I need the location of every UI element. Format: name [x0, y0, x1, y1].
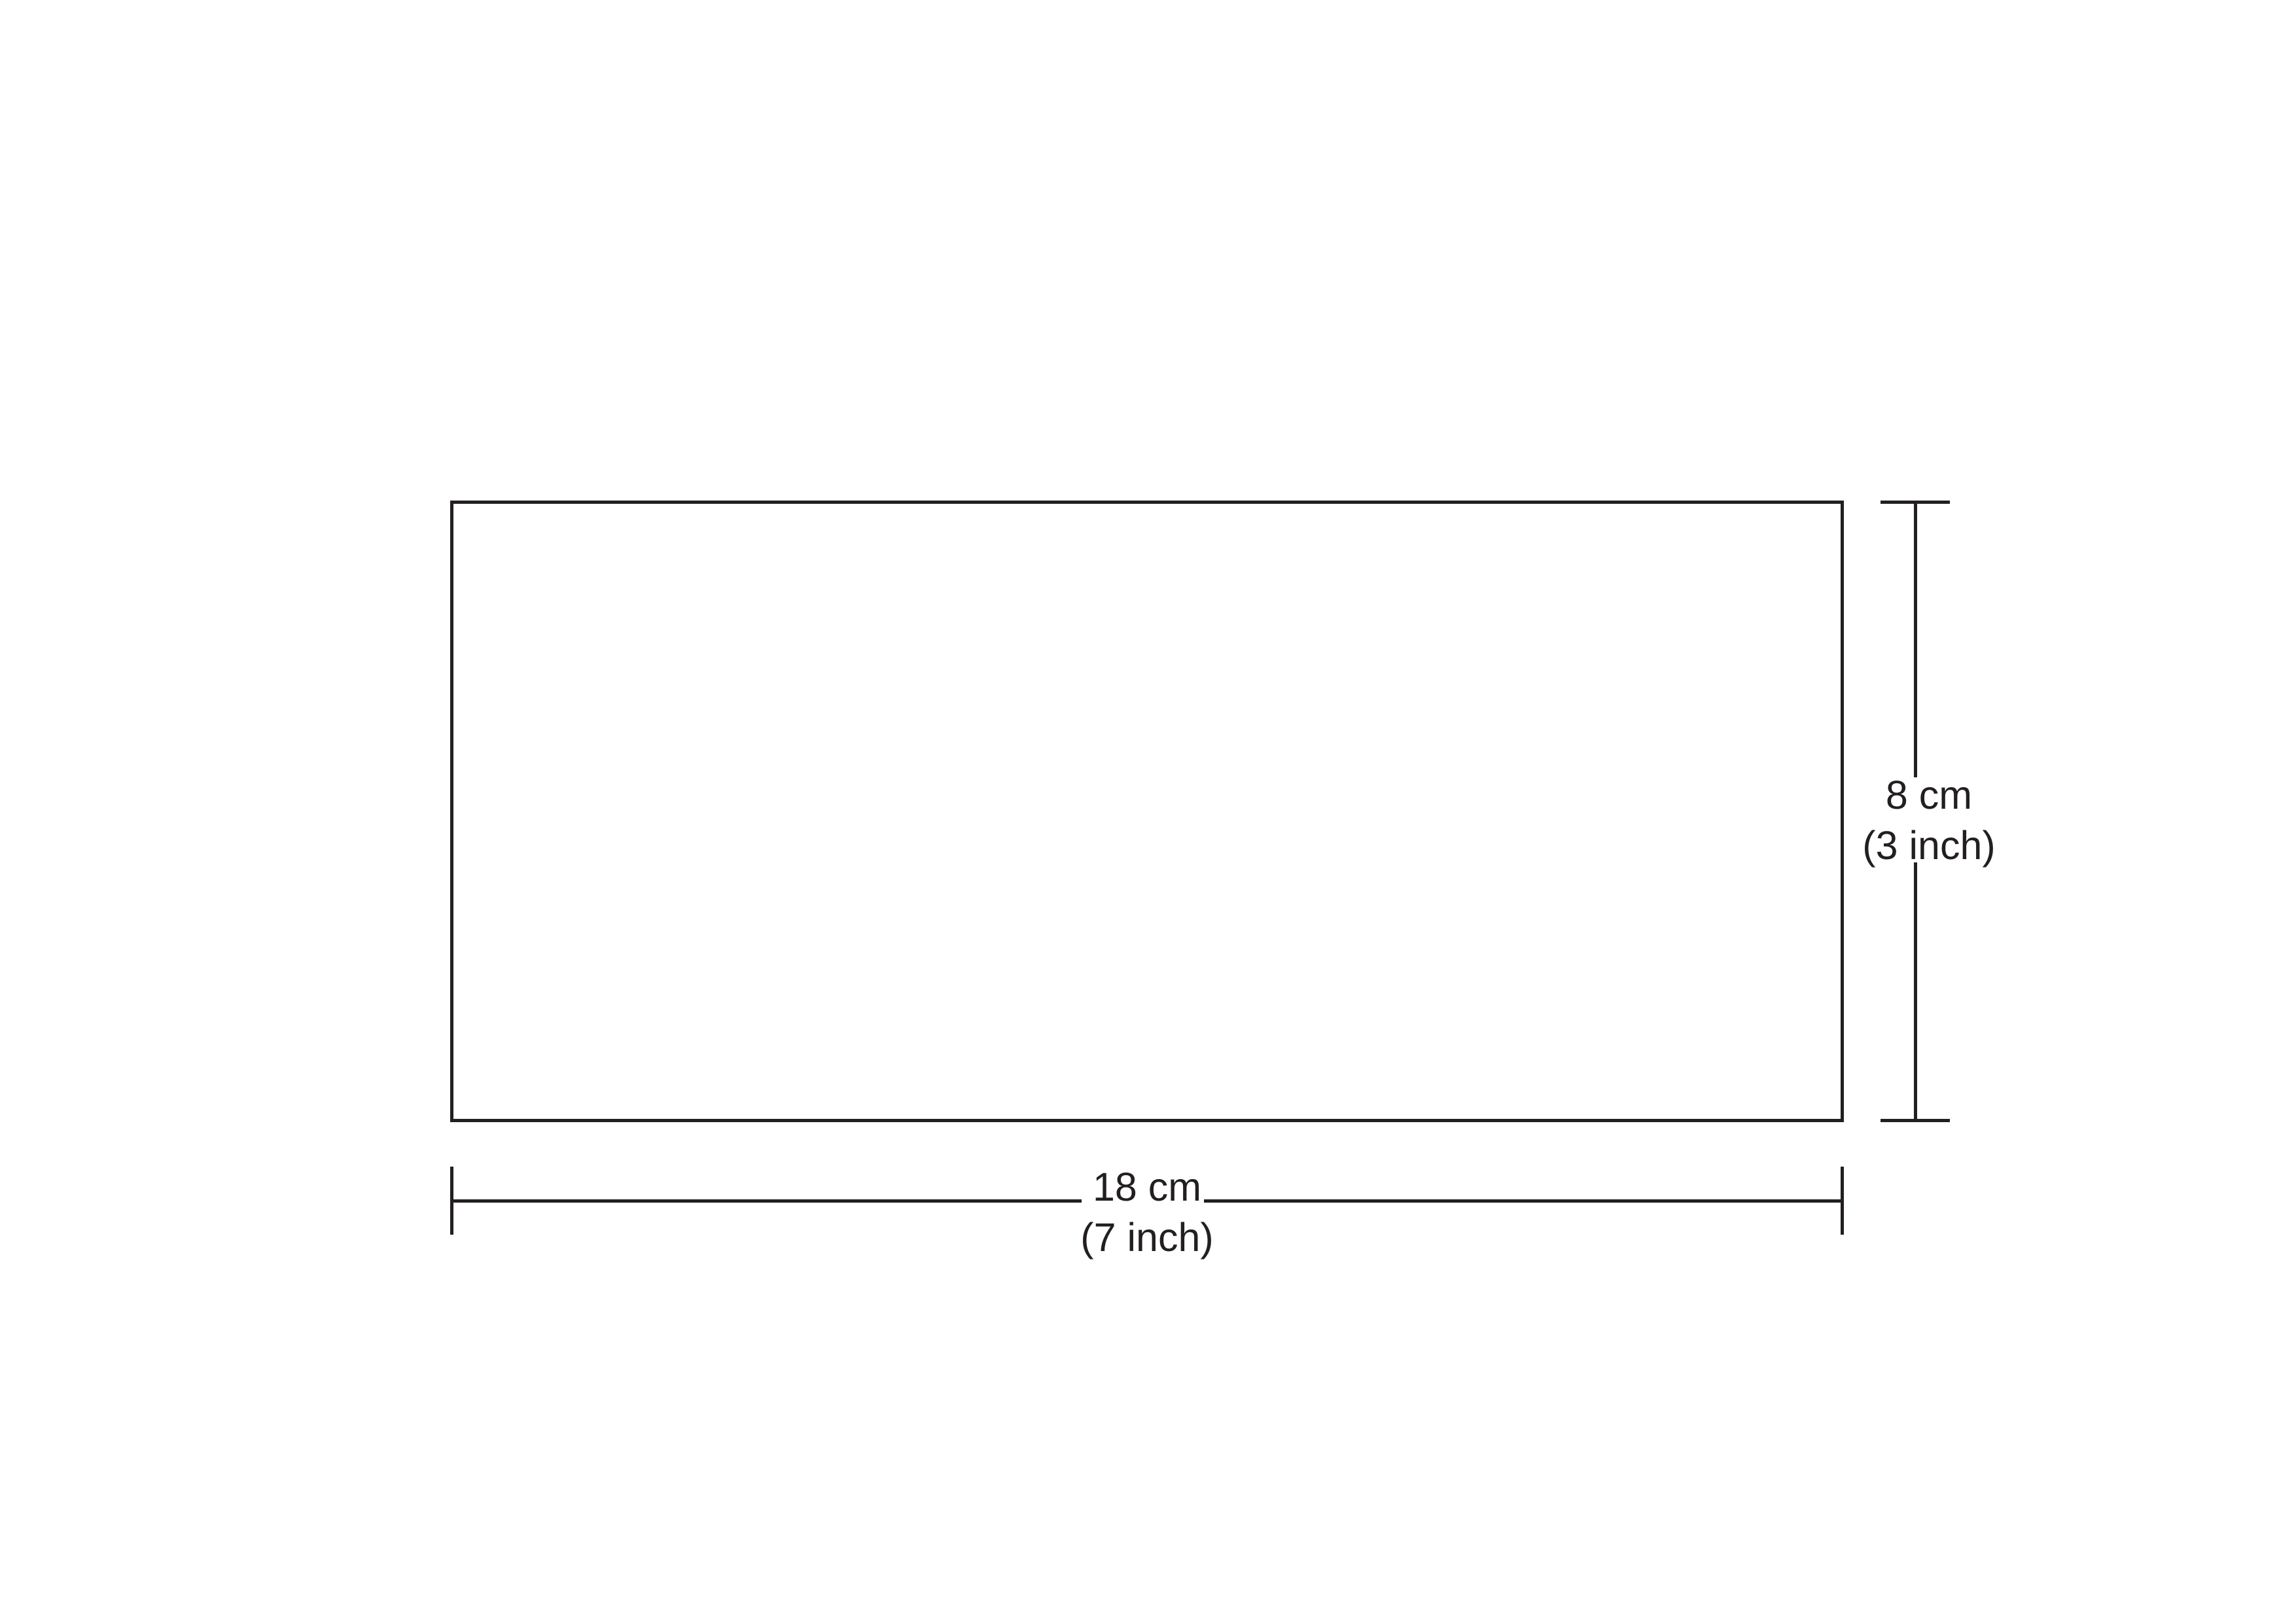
height-dimension-line-lower-segment — [1914, 862, 1917, 1119]
rectangle-shape — [450, 501, 1844, 1122]
width-dimension-line-left-segment — [451, 1199, 1082, 1203]
width-dimension-label: 18 cm (7 inch) — [1016, 1162, 1278, 1263]
width-metric-text: 18 cm — [1016, 1162, 1278, 1212]
diagram-canvas: 8 cm (3 inch) 18 cm (7 inch) — [0, 0, 2296, 1624]
height-dimension-line-upper-segment — [1914, 504, 1917, 777]
width-dimension-line-right-segment — [1204, 1199, 1843, 1203]
height-metric-text: 8 cm — [1798, 770, 2060, 821]
height-dimension-tick-bottom — [1881, 1119, 1950, 1122]
height-dimension-label: 8 cm (3 inch) — [1798, 770, 2060, 871]
width-dimension-tick-right — [1841, 1167, 1844, 1235]
height-imperial-text: (3 inch) — [1798, 821, 2060, 871]
width-imperial-text: (7 inch) — [1016, 1212, 1278, 1263]
